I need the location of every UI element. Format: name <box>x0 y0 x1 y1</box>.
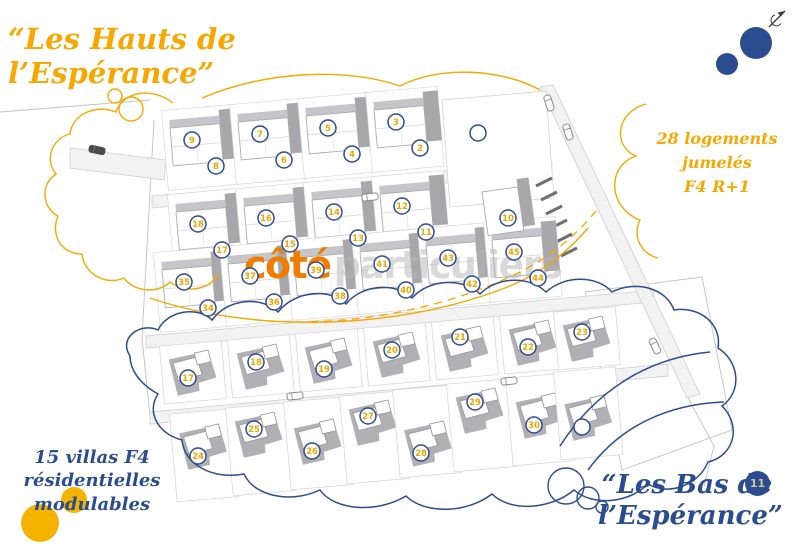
plot-number: 27 <box>362 412 374 422</box>
plot-number: 26 <box>306 447 318 457</box>
plot-number: 41 <box>376 260 388 270</box>
plot-number: 35 <box>178 278 190 288</box>
plot-number: 10 <box>502 214 514 224</box>
plot-number: 34 <box>202 304 214 314</box>
plot-number: 3 <box>393 118 399 128</box>
plot-number: 6 <box>281 156 287 166</box>
annotation-villas-line2: résidentielles modulables <box>0 469 184 516</box>
annotation-villas: 15 villas F4 résidentielles modulables <box>0 446 184 516</box>
plot-number: 9 <box>189 136 195 146</box>
plot-number: 45 <box>508 248 520 258</box>
plot-number: 7 <box>257 130 263 140</box>
orange-cloud-outline <box>202 72 540 98</box>
plot-number: 18 <box>192 220 204 230</box>
plot-number: 37 <box>244 272 256 282</box>
plot-number: 20 <box>386 346 398 356</box>
cloud-bubble-orange <box>108 89 122 103</box>
plot-number: 19 <box>318 365 330 375</box>
title-les-hauts-line2: l’Espérance” <box>8 56 248 90</box>
plot-number: 43 <box>442 254 454 264</box>
plot-number: 42 <box>466 280 478 290</box>
plot-number: 17 <box>216 246 228 256</box>
plot-number: 2 <box>417 144 423 154</box>
plot-number: 21 <box>454 333 466 343</box>
plot-number: 25 <box>248 425 260 435</box>
plot-number: 44 <box>532 274 544 284</box>
plot-number: 5 <box>325 124 331 134</box>
plot-empty-circle <box>470 125 486 141</box>
plot-number: 38 <box>334 292 346 302</box>
plot-number: 39 <box>310 266 322 276</box>
plot-number: 36 <box>268 298 280 308</box>
plot-number: 8 <box>213 162 219 172</box>
plot-number: 17 <box>182 374 194 384</box>
annotation-logements-line1: 28 logements jumelés <box>634 127 800 175</box>
decor-solid-circle <box>716 53 738 75</box>
plot-number: 4 <box>349 150 355 160</box>
plot-number: 13 <box>352 234 364 244</box>
plot-number: 23 <box>576 328 588 338</box>
page-number-badge: 11 <box>745 471 770 496</box>
plot-number: 30 <box>528 421 540 431</box>
cloud-bubble-orange <box>119 97 143 121</box>
annotation-logements-line2: F4 R+1 <box>634 175 800 199</box>
title-les-hauts-line1: “Les Hauts de <box>8 22 248 56</box>
annotation-logements: 28 logements jumelés F4 R+1 <box>634 127 800 199</box>
plot-empty-circle <box>574 419 590 435</box>
plot-number: 29 <box>469 398 481 408</box>
plot-number: 24 <box>192 452 204 462</box>
cloud-bubble-blue <box>548 468 584 504</box>
blue-cloud-outline <box>588 402 724 470</box>
plot-number: 12 <box>396 202 408 212</box>
plot-number: 14 <box>328 208 340 218</box>
presentation-slide: côtéparticuliers 98765432181716151413121… <box>0 0 800 551</box>
compass-north-icon <box>762 4 792 34</box>
plot-number: 22 <box>522 343 534 353</box>
plot-number: 18 <box>250 358 262 368</box>
annotation-villas-line1: 15 villas F4 <box>0 446 184 469</box>
title-les-bas-line2: l’Espérance” <box>598 501 776 532</box>
plot-number: 11 <box>420 228 432 238</box>
plot-number: 40 <box>400 286 412 296</box>
plot-number: 28 <box>415 449 427 459</box>
plot-number: 15 <box>284 240 296 250</box>
title-les-hauts: “Les Hauts de l’Espérance” <box>8 22 248 90</box>
plot-number: 16 <box>260 214 272 224</box>
pedestrian-path-dashed <box>240 206 600 322</box>
orange-cloud-outline <box>45 93 218 290</box>
